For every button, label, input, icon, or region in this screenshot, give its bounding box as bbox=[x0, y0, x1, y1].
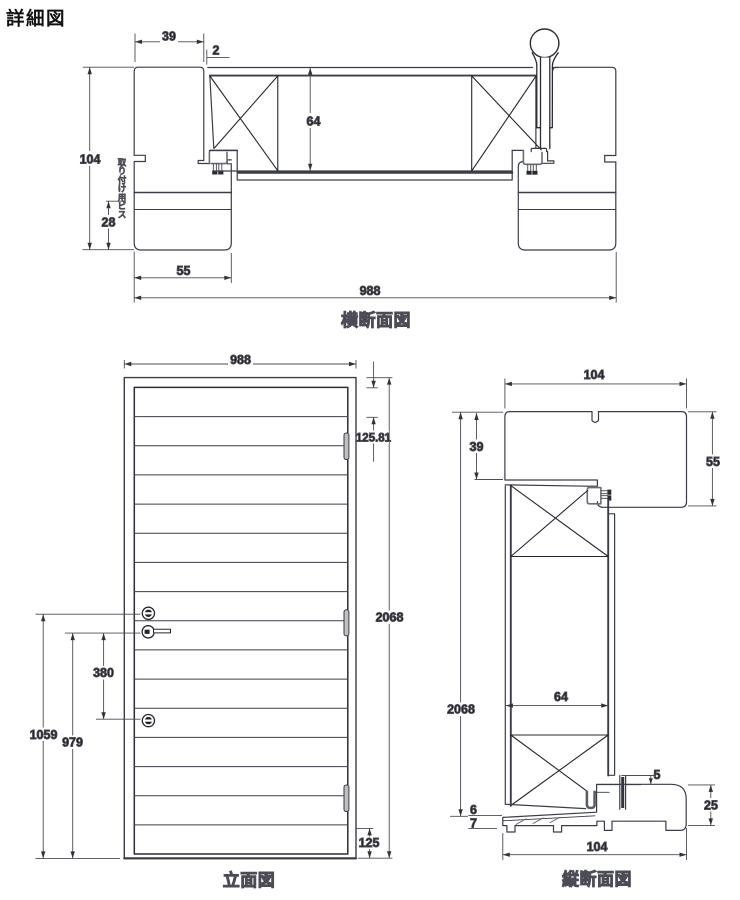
svg-text:125.81: 125.81 bbox=[356, 433, 392, 445]
svg-text:988: 988 bbox=[360, 284, 381, 298]
svg-text:25: 25 bbox=[704, 798, 718, 812]
svg-text:39: 39 bbox=[162, 30, 176, 44]
svg-text:縦断面図: 縦断面図 bbox=[562, 869, 632, 889]
svg-text:64: 64 bbox=[554, 690, 568, 704]
svg-text:7: 7 bbox=[470, 816, 477, 830]
svg-text:2068: 2068 bbox=[376, 611, 404, 625]
svg-text:380: 380 bbox=[93, 666, 114, 680]
svg-text:2068: 2068 bbox=[447, 703, 475, 717]
svg-text:104: 104 bbox=[80, 153, 101, 167]
svg-text:詳細図: 詳細図 bbox=[6, 8, 66, 29]
svg-text:立面図: 立面図 bbox=[223, 870, 276, 890]
svg-text:1059: 1059 bbox=[30, 728, 58, 742]
svg-text:64: 64 bbox=[307, 115, 321, 129]
svg-text:39: 39 bbox=[470, 440, 484, 454]
svg-text:979: 979 bbox=[62, 736, 83, 750]
svg-text:横断面図: 横断面図 bbox=[341, 310, 411, 330]
svg-text:55: 55 bbox=[706, 455, 720, 469]
svg-text:取り付け用ビス: 取り付け用ビス bbox=[118, 158, 127, 220]
svg-text:55: 55 bbox=[177, 264, 191, 278]
svg-text:125: 125 bbox=[359, 836, 380, 850]
svg-text:28: 28 bbox=[102, 216, 116, 230]
svg-text:6: 6 bbox=[470, 803, 477, 817]
svg-text:988: 988 bbox=[230, 353, 251, 367]
svg-text:5: 5 bbox=[654, 768, 661, 782]
svg-text:2: 2 bbox=[213, 44, 220, 58]
svg-text:104: 104 bbox=[584, 368, 605, 382]
svg-text:104: 104 bbox=[587, 840, 608, 854]
